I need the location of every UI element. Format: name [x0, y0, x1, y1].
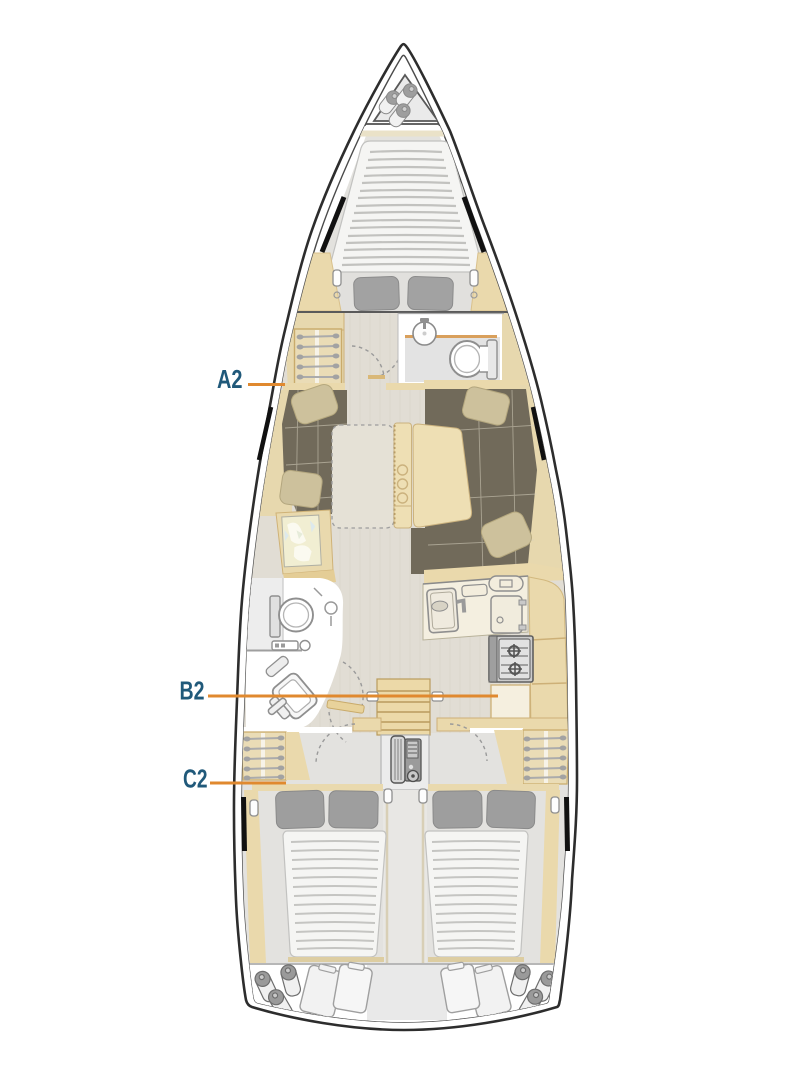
svg-text:C2: C2 — [183, 766, 208, 794]
svg-text:B2: B2 — [180, 678, 205, 706]
svg-text:A2: A2 — [217, 366, 243, 394]
